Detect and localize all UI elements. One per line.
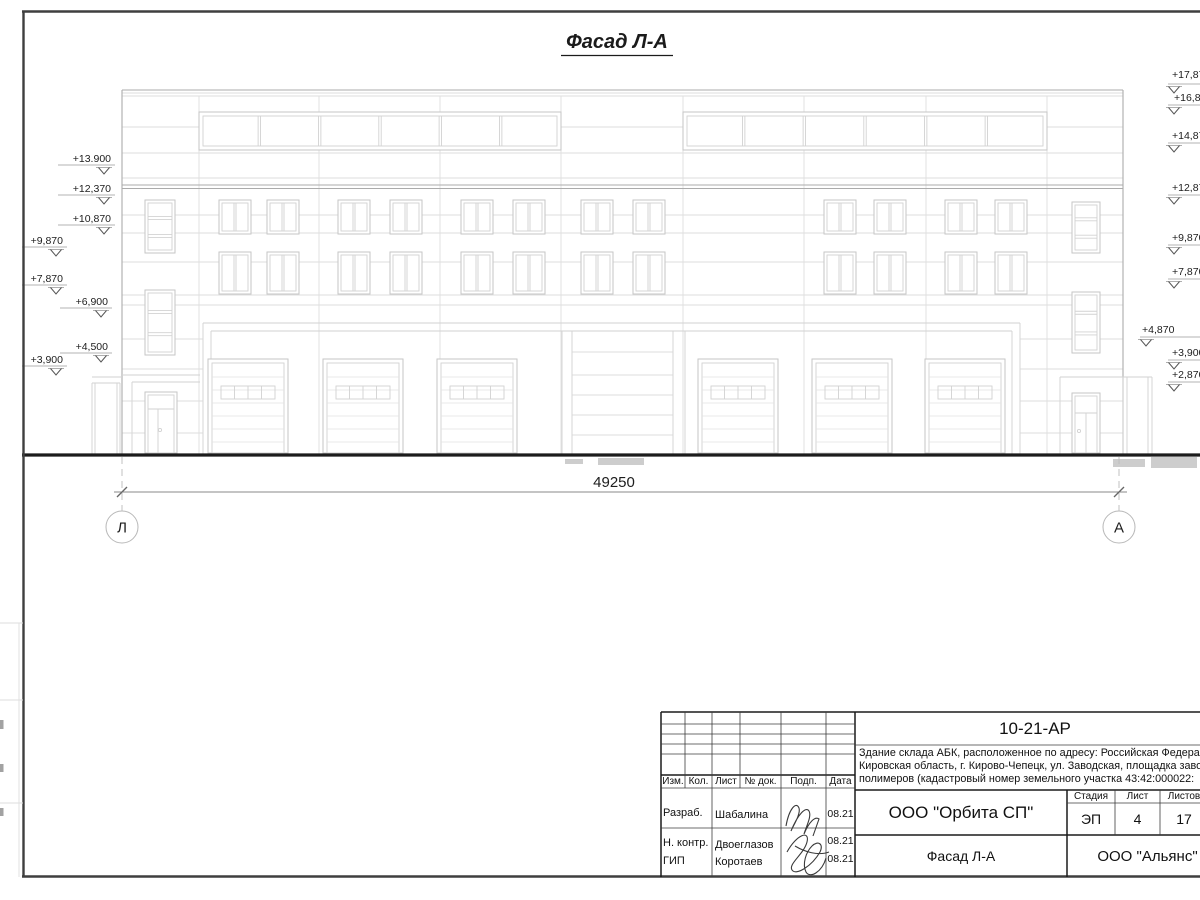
design-org: ООО "Орбита СП" — [855, 790, 1067, 835]
dimension-annotations: Л А 49250 — [106, 457, 1135, 543]
row-role: Разраб. — [663, 807, 703, 819]
axis-label-right: А — [1114, 520, 1124, 537]
elevation-value: +12,370 — [73, 183, 111, 195]
signature-approvers — [787, 835, 829, 875]
elevation-value: +3,900 — [31, 354, 64, 366]
elevation-mark: +3,900 — [1166, 347, 1200, 369]
col-list: Лист — [712, 775, 740, 788]
row-role: ГИП — [663, 855, 685, 867]
row-name: Шабалина — [715, 809, 768, 821]
elevation-value: +12,870 — [1172, 182, 1200, 194]
stage-label: Стадия — [1067, 790, 1115, 803]
elevation-value: +4,870 — [1142, 324, 1175, 336]
sheets-value: 17 — [1160, 803, 1200, 835]
elevation-value: +17,870 — [1172, 69, 1200, 81]
description-line: Кировская область, г. Кирово-Чепецк, ул.… — [859, 760, 1200, 773]
elevation-mark: +10,870 — [58, 213, 115, 234]
elevation-mark: +7,870 — [1166, 266, 1200, 288]
drawing-sheet: Л А 49250 +13.900+12,370+10,870+9,870+7,… — [0, 0, 1200, 900]
building-facade-drawing — [92, 90, 1152, 455]
row-date: 08.21 — [826, 852, 855, 865]
elevation-mark: +17,870 — [1166, 69, 1200, 93]
elevation-mark: +14,870 — [1166, 130, 1200, 152]
elevation-value: +7,870 — [1172, 266, 1200, 278]
sheet-title: Фасад Л-А — [855, 835, 1067, 877]
ground-line — [22, 455, 1200, 468]
row-date: 08.21 — [826, 834, 855, 847]
elevation-mark: +12,370 — [58, 183, 115, 204]
sheet-value: 4 — [1115, 803, 1160, 835]
col-ndok: № док. — [740, 775, 781, 788]
axis-label-left: Л — [117, 520, 127, 537]
elevation-mark: +4,870 — [1138, 324, 1200, 346]
sheet-label: Лист — [1115, 790, 1160, 803]
elevation-value: +13.900 — [73, 153, 111, 165]
description-line: Здание склада АБК, расположенное по адре… — [859, 747, 1200, 760]
row-name: Коротаев — [715, 856, 763, 868]
col-podp: Подп. — [781, 775, 826, 788]
row-date: 08.21 — [826, 807, 855, 820]
project-description: Здание склада АБК, расположенное по адре… — [859, 747, 1200, 786]
row-name: Двоеглазов — [715, 839, 773, 851]
drawing-title: Фасад Л-А — [566, 31, 668, 53]
elevation-value: +6,900 — [76, 296, 109, 308]
elevation-mark: +2,870 — [1166, 369, 1200, 391]
col-izm: Изм. — [661, 775, 685, 788]
doc-number: 10-21-АР — [855, 712, 1200, 745]
elevation-mark: +7,870 — [22, 273, 67, 294]
elevation-value: +9,870 — [1172, 232, 1200, 244]
elevation-value: +10,870 — [73, 213, 111, 225]
elevation-mark: +3,900 — [22, 354, 67, 375]
contractor-org: ООО "Альянс" — [1067, 835, 1200, 877]
signatures — [786, 805, 829, 874]
elevation-value: +2,870 — [1172, 369, 1200, 381]
elevation-value: +16,870 — [1174, 92, 1200, 104]
elevation-mark: +13.900 — [58, 153, 115, 174]
elevation-mark: +4,500 — [60, 341, 112, 362]
elevation-mark: +9,870 — [1166, 232, 1200, 254]
sheets-label: Листов — [1160, 790, 1200, 803]
elevation-mark: +9,870 — [22, 235, 67, 256]
col-kol: Кол. — [685, 775, 712, 788]
elevation-mark: +12,870 — [1166, 182, 1200, 204]
elevation-value: +9,870 — [31, 235, 64, 247]
description-line: полимеров (кадастровый номер земельного … — [859, 773, 1200, 786]
elevation-value: +4,500 — [76, 341, 109, 353]
signature-developer — [786, 805, 819, 836]
col-data: Дата — [826, 775, 855, 788]
overall-dimension: 49250 — [593, 474, 635, 491]
elevation-mark: +16,870 — [1166, 92, 1200, 114]
row-role: Н. контр. — [663, 837, 708, 849]
elevation-value: +14,870 — [1172, 130, 1200, 142]
elevation-value: +7,870 — [31, 273, 64, 285]
elevation-value: +3,900 — [1172, 347, 1200, 359]
elevation-mark: +6,900 — [60, 296, 112, 317]
stage-value: ЭП — [1067, 803, 1115, 835]
